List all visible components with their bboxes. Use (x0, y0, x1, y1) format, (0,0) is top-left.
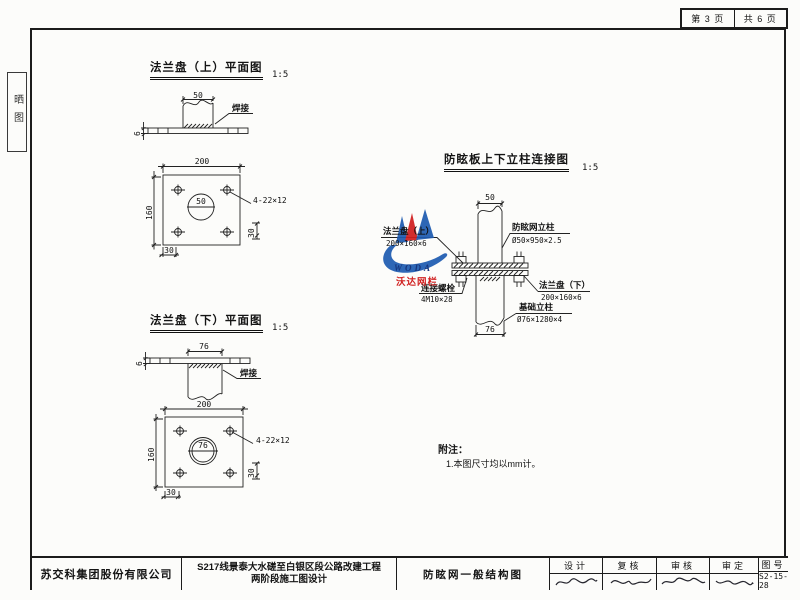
lower-flange-label: 法兰盘（下） (539, 279, 590, 291)
page-number-box: 第 3 页 共 6 页 (680, 8, 788, 29)
lower-flange-title: 法兰盘（下）平面图 (150, 312, 263, 333)
lower-flange-scale: 1:5 (272, 323, 288, 333)
dim-plate-width: 200 (193, 400, 215, 409)
column-recheck: 复核 (603, 558, 657, 590)
column-design: 设计 (550, 558, 603, 590)
drawing-name: 防眩网一般结构图 (397, 558, 550, 590)
holes-callout: 4-22×12 (253, 196, 287, 205)
dim-offset-side: 30 (247, 468, 256, 478)
recheck-signature (603, 574, 656, 590)
upper-post-label: 防眩网立柱 (512, 221, 555, 233)
column-review: 审核 (657, 558, 710, 590)
upper-flange-label: 法兰盘（上） (383, 225, 434, 237)
title-block: 苏交科集团股份有限公司 S217线景泰大水磋至白银区段公路改建工程 两阶段施工图… (30, 556, 788, 590)
approve-signature (710, 574, 758, 590)
upper-flange-scale: 1:5 (272, 70, 288, 80)
dim-offset-side: 30 (247, 228, 256, 238)
sheet-border-frame (30, 28, 786, 590)
dim-plate-height: 160 (147, 448, 156, 462)
notes-heading: 附注： (438, 441, 468, 456)
recheck-header: 复核 (603, 558, 656, 574)
side-tab: 晒图 (7, 72, 27, 152)
base-post-spec: Ø76×1280×4 (517, 315, 562, 324)
project-line2: 两阶段施工图设计 (251, 574, 327, 586)
approve-header: 审定 (710, 558, 758, 574)
dim-offset-bottom: 30 (164, 488, 178, 497)
column-drawing-no: 图号 S2-15-28 (759, 558, 788, 590)
dim-plate-height: 160 (145, 206, 154, 220)
page-total: 共 6 页 (735, 10, 787, 27)
holes-callout: 4-22×12 (256, 436, 290, 445)
dim-base-post: 76 (482, 325, 498, 334)
drawing-no-value: S2-15-28 (759, 572, 788, 590)
bolt-spec: 4M10×28 (421, 295, 453, 304)
drawing-sheet: 第 3 页 共 6 页 晒图 (0, 0, 800, 600)
dim-plate-thickness: 6 (133, 131, 142, 136)
project-line1: S217线景泰大水磋至白银区段公路改建工程 (197, 562, 381, 574)
woda-logo-text: WODA (394, 263, 433, 273)
dim-pipe-width: 50 (190, 91, 206, 100)
upper-flange-spec: 200×160×6 (386, 239, 427, 248)
woda-logo-chinese: 沃达网栏 (396, 274, 438, 288)
signature-scribble (660, 575, 706, 589)
dim-offset-bottom: 30 (162, 246, 176, 255)
base-post-label: 基础立柱 (519, 301, 553, 313)
design-header: 设计 (550, 558, 602, 574)
design-signature (550, 574, 602, 590)
column-approve: 审定 (710, 558, 759, 590)
dim-plate-thickness: 6 (135, 361, 144, 366)
drawing-no-header: 图号 (759, 558, 788, 572)
signature-scribble (607, 575, 653, 589)
connection-scale: 1:5 (582, 163, 598, 173)
upper-flange-title: 法兰盘（上）平面图 (150, 59, 263, 80)
dim-plate-width: 200 (191, 157, 213, 166)
signature-scribble (713, 575, 755, 589)
page-number: 第 3 页 (682, 10, 735, 27)
dim-upper-post: 50 (482, 193, 498, 202)
dim-pipe-dia: 76 (196, 441, 210, 450)
signature-scribble (553, 575, 599, 589)
dim-pipe-width: 76 (196, 342, 212, 351)
project-name: S217线景泰大水磋至白银区段公路改建工程 两阶段施工图设计 (182, 558, 397, 590)
weld-label: 焊接 (240, 367, 257, 379)
dim-pipe-dia: 50 (194, 197, 208, 206)
upper-post-spec: Ø50×950×2.5 (512, 236, 562, 245)
connection-title: 防眩板上下立柱连接图 (444, 151, 569, 172)
side-tab-label: 晒图 (10, 94, 25, 130)
weld-label: 焊接 (232, 102, 249, 114)
note-item: 1.本图尺寸均以mm计。 (446, 457, 541, 470)
review-header: 审核 (657, 558, 709, 574)
review-signature (657, 574, 709, 590)
company-name: 苏交科集团股份有限公司 (32, 558, 182, 590)
